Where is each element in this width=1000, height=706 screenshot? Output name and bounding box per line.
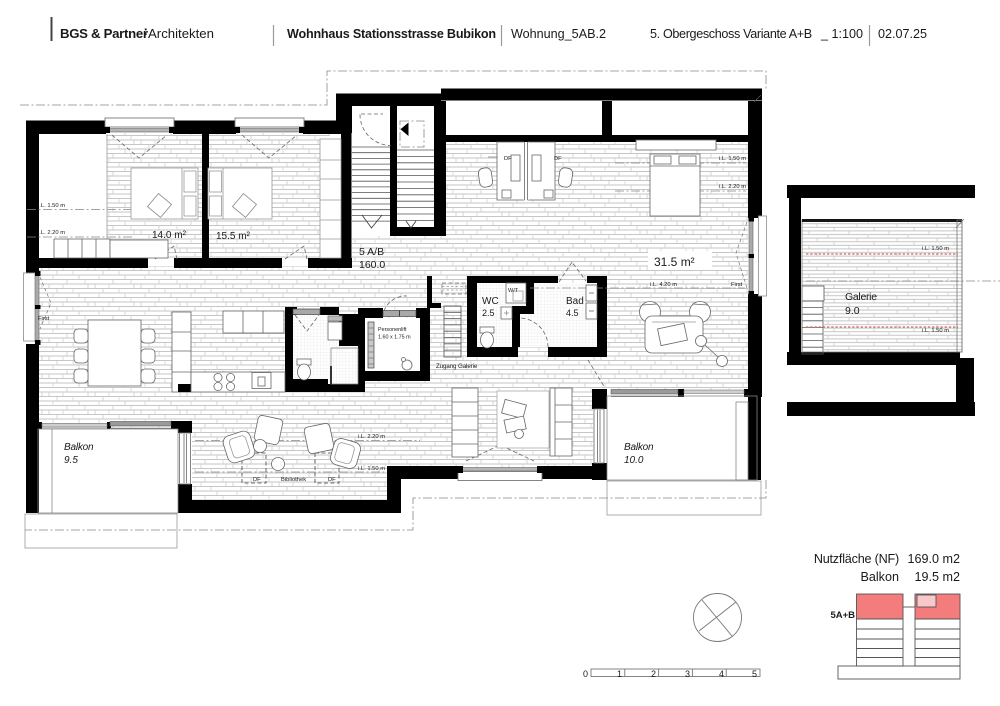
svg-text:Balkon: Balkon [860,570,899,584]
svg-text:Nutzfläche (NF): Nutzfläche (NF) [814,552,899,566]
svg-text:2.5: 2.5 [482,308,495,318]
svg-text:Balkon: Balkon [64,442,94,453]
svg-text:BGS & Partner: BGS & Partner [60,26,148,41]
svg-text:DF: DF [504,156,512,162]
svg-text:_ 1:100: _ 1:100 [820,27,863,41]
svg-text:Architekten: Architekten [148,26,214,41]
svg-text:i.L. 2.20 m: i.L. 2.20 m [38,230,65,236]
svg-text:Zugang Galerie: Zugang Galerie [436,363,478,370]
svg-text:DF: DF [253,477,261,483]
svg-text:Galerie: Galerie [845,291,877,303]
svg-text:i.L. 1.50 m: i.L. 1.50 m [38,203,65,209]
svg-text:W/T: W/T [508,288,519,294]
svg-text:i.L. 1.50 m: i.L. 1.50 m [922,328,949,334]
svg-text:169.0 m2: 169.0 m2 [907,552,960,566]
svg-text:First: First [731,282,743,288]
svg-text:14.0 m²: 14.0 m² [152,230,187,241]
svg-text:5A+B: 5A+B [830,610,855,621]
svg-text:19.5 m2: 19.5 m2 [914,570,960,584]
svg-text:5: 5 [752,669,757,679]
svg-text:Bad: Bad [566,296,584,307]
svg-text:5 A/B: 5 A/B [359,246,384,258]
svg-text:Balkon: Balkon [624,442,654,453]
svg-text:0: 0 [583,669,588,679]
svg-text:02.07.25: 02.07.25 [878,27,927,41]
svg-text:WC: WC [482,296,499,307]
svg-text:4.5: 4.5 [566,308,579,318]
svg-text:4: 4 [719,669,724,679]
svg-text:i.L. 4.20 m: i.L. 4.20 m [650,282,677,288]
svg-text:Personenlift: Personenlift [378,327,407,333]
svg-text:i.L. 2.20 m: i.L. 2.20 m [358,434,385,440]
svg-text:Wohnung_5AB.2: Wohnung_5AB.2 [511,27,606,41]
svg-text:5. Obergeschoss Variante A+B: 5. Obergeschoss Variante A+B [650,27,812,41]
svg-text:i.L. 1.50 m: i.L. 1.50 m [922,246,949,252]
svg-text:i.L. 2.20 m: i.L. 2.20 m [719,184,746,190]
svg-text:10.0: 10.0 [624,455,644,466]
svg-text:1: 1 [617,669,622,679]
svg-text:15.5 m²: 15.5 m² [216,231,251,242]
svg-text:First: First [38,316,50,322]
svg-text:3: 3 [685,669,690,679]
svg-text:DF: DF [554,156,562,162]
svg-text:9.0: 9.0 [845,305,860,317]
svg-text:Bibliothek: Bibliothek [281,477,306,483]
svg-text:Wohnhaus Stationsstrasse Bubik: Wohnhaus Stationsstrasse Bubikon [287,27,496,41]
svg-text:i.L. 1.50 m: i.L. 1.50 m [719,156,746,162]
svg-text:9.5: 9.5 [64,455,78,466]
svg-text:31.5 m²: 31.5 m² [654,255,695,269]
svg-text:160.0: 160.0 [359,259,385,271]
svg-text:1.60 x 1.75 m: 1.60 x 1.75 m [378,335,411,341]
svg-text:DF: DF [328,477,336,483]
svg-text:2: 2 [651,669,656,679]
svg-text:i.L. 1.50 m: i.L. 1.50 m [358,466,385,472]
